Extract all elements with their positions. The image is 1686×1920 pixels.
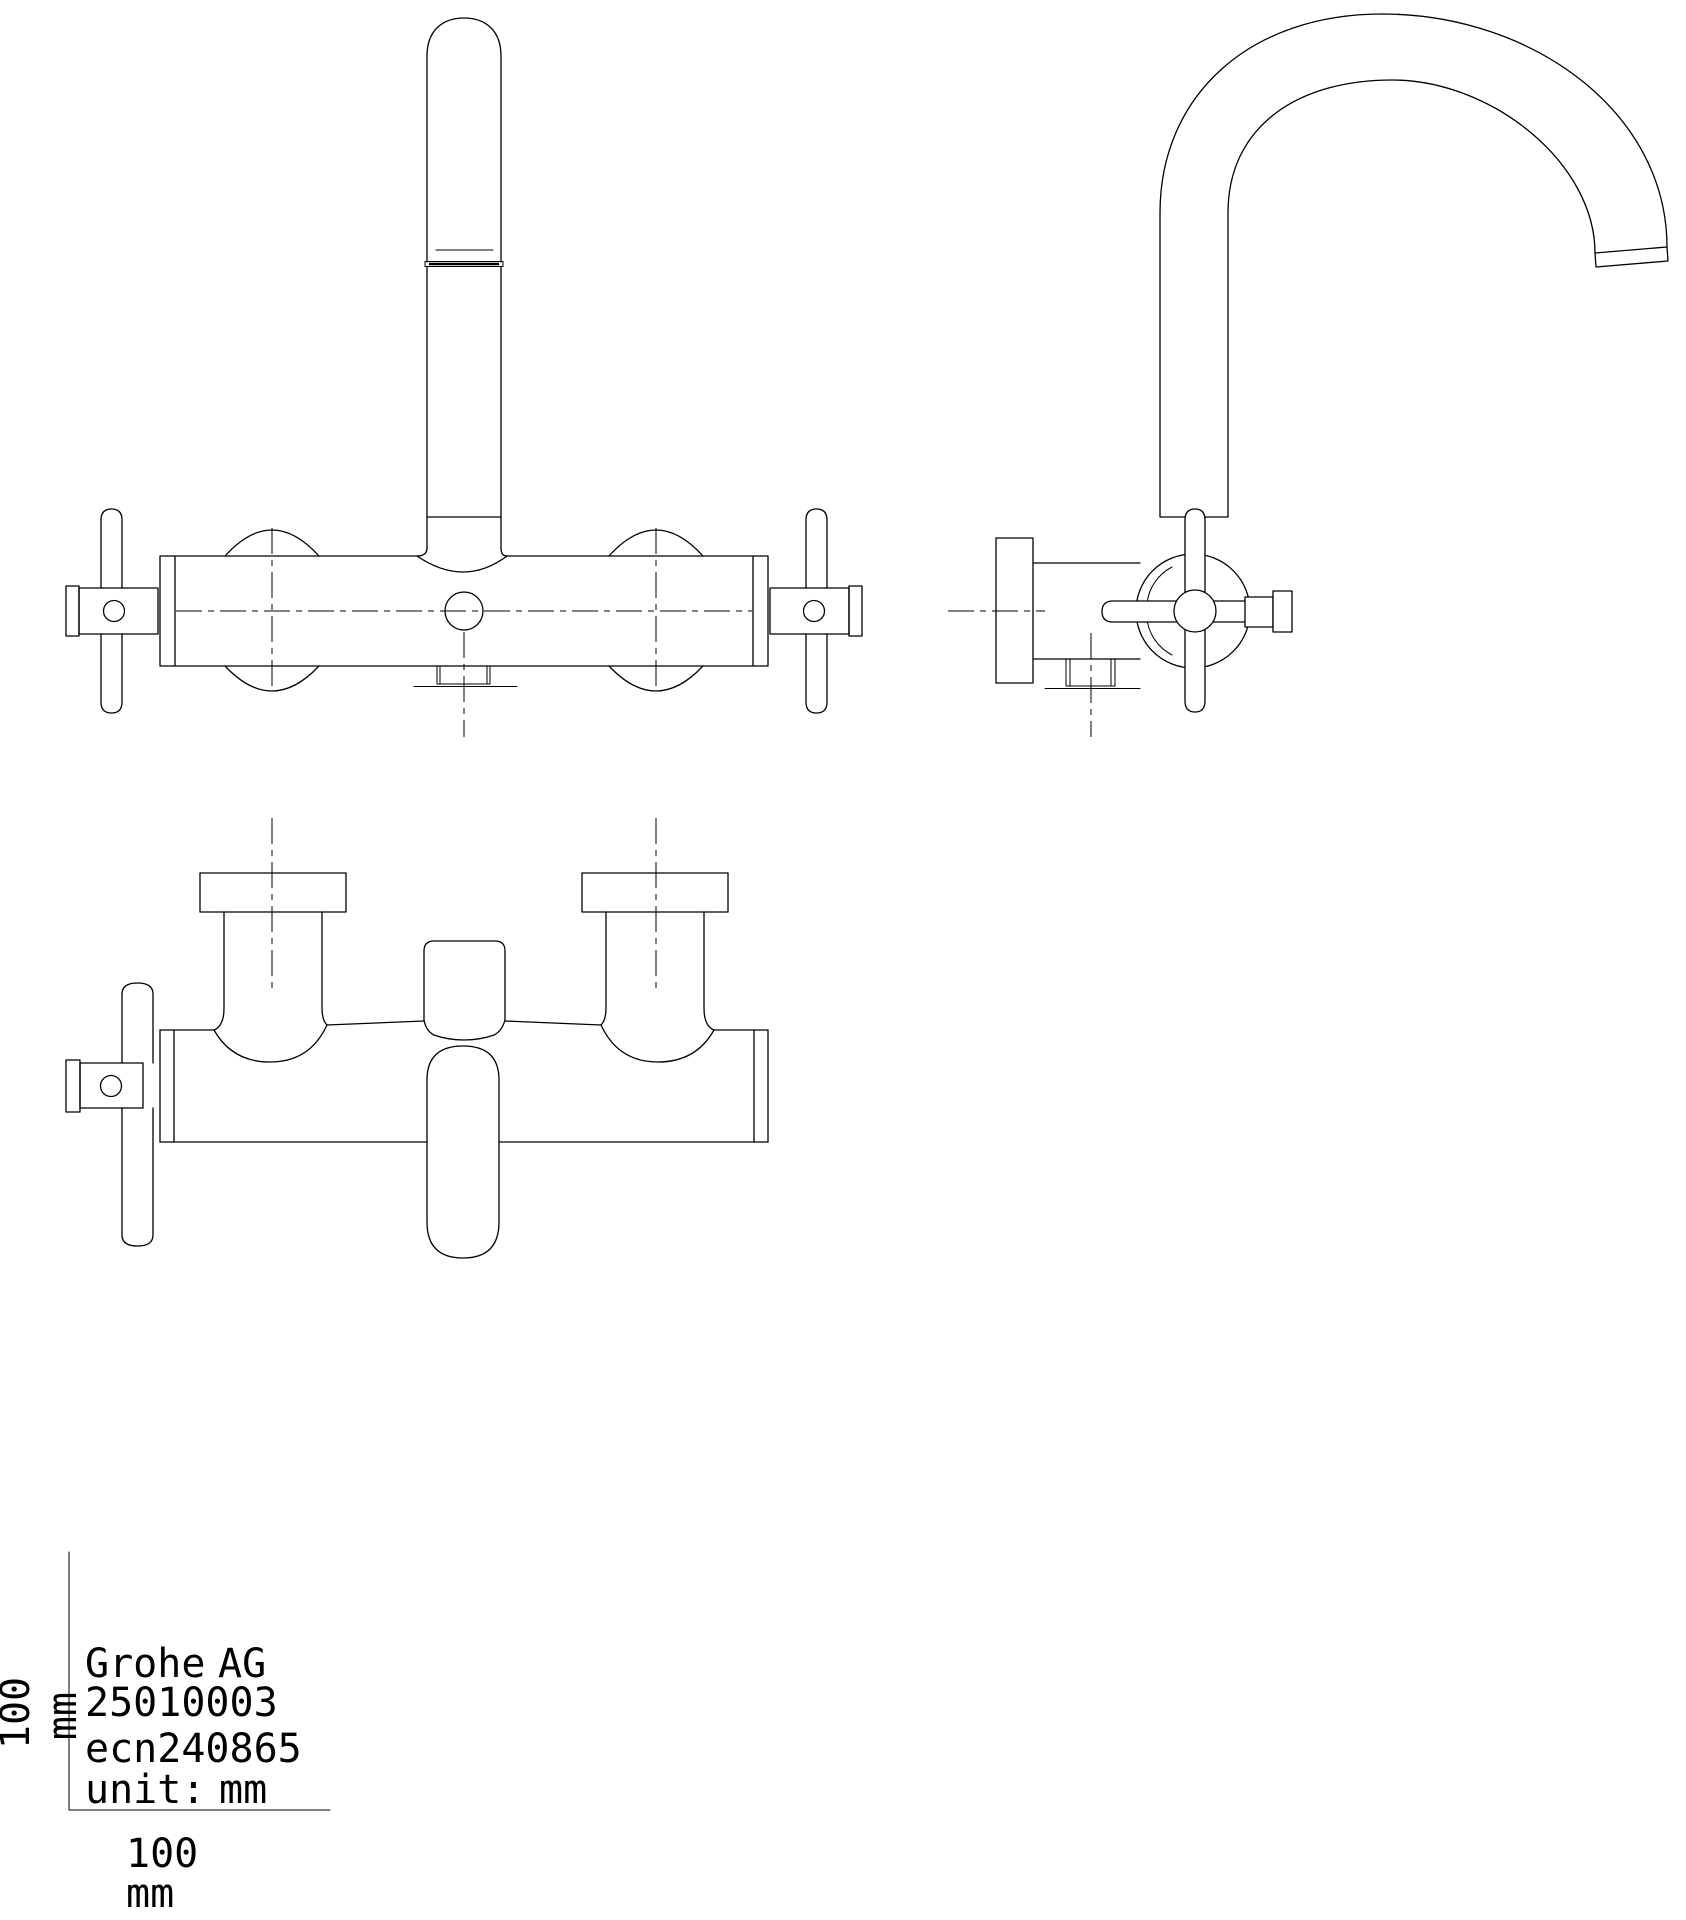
swivel-collar	[425, 262, 503, 267]
technical-drawing-page: 100 mm 100 mm Grohe AG 25010003 ecn24086…	[0, 0, 1686, 1920]
x-axis-unit-label: mm	[126, 1871, 174, 1917]
spout-outlet-tip	[1595, 247, 1668, 267]
handle-arm-endcap	[1273, 591, 1292, 632]
spout-tube-front	[417, 18, 507, 572]
bottom-view	[66, 818, 768, 1258]
handle-cross-front-face	[1102, 509, 1292, 712]
spout-base	[424, 941, 505, 1040]
handle-arm-circle-right	[804, 601, 825, 622]
bottom-handle-cross	[66, 983, 153, 1246]
handle-arm-circle-bottom	[101, 1076, 122, 1097]
y-axis-unit-label: mm	[40, 1692, 86, 1740]
unit-label: unit:	[85, 1767, 205, 1813]
handle-arm-circle-left	[104, 601, 125, 622]
valve-bonnet-right	[582, 873, 728, 1062]
y-axis-value-label: 100	[0, 1677, 39, 1749]
mounting-nut-front	[414, 666, 517, 687]
spout-projection-pill	[427, 1046, 499, 1258]
bottom-centerlines	[272, 818, 656, 988]
part-number-label: 25010003	[85, 1680, 278, 1726]
right-handle-cross	[770, 509, 862, 713]
revision-label: ecn240865	[85, 1726, 302, 1772]
side-view	[948, 14, 1668, 737]
front-centerlines	[176, 528, 752, 737]
handle-hub-circle	[1174, 590, 1216, 632]
gooseneck-spout	[1160, 14, 1668, 517]
valve-bonnet-left	[200, 873, 346, 1062]
handle-arm-ferrule	[1245, 597, 1273, 627]
unit-value-label: mm	[219, 1767, 267, 1813]
mounting-nut-side	[1045, 659, 1140, 689]
technical-drawing-canvas: 100 mm 100 mm Grohe AG 25010003 ecn24086…	[0, 0, 1686, 1920]
front-view	[66, 18, 862, 737]
title-block: Grohe AG 25010003 ecn240865 unit: mm	[85, 1641, 302, 1813]
left-handle-cross	[66, 509, 158, 713]
